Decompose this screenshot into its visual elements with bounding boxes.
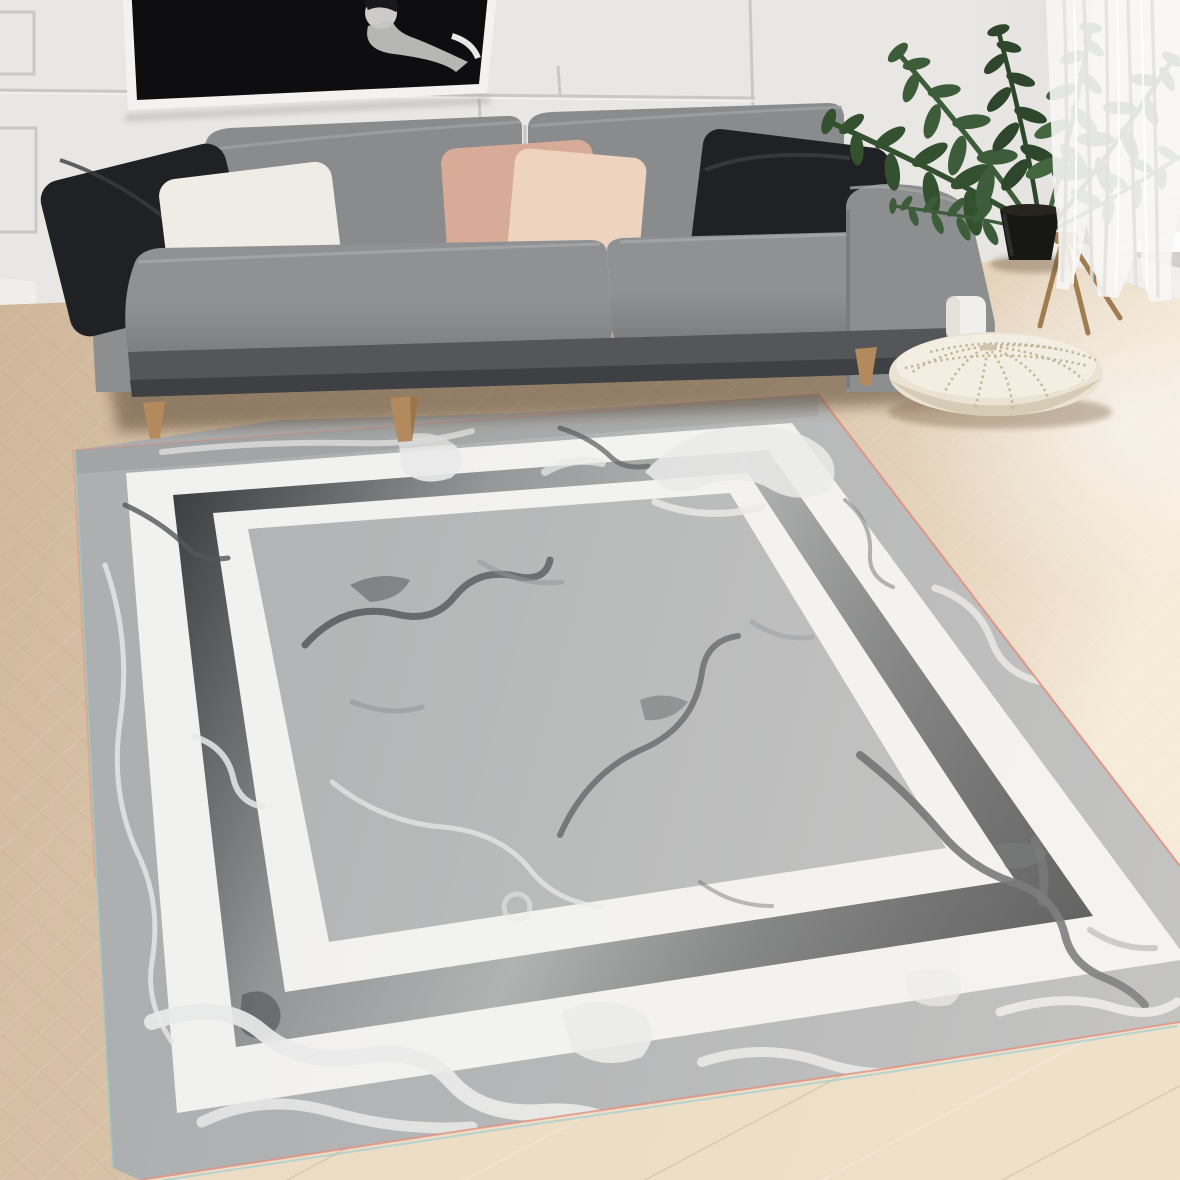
- living-room-scene: Living room product photo: gray marble-p…: [0, 0, 1180, 1180]
- baseboard-left: [0, 278, 36, 308]
- scene-art: [0, 0, 1180, 1180]
- window-curtain: [1046, 0, 1180, 302]
- pouf-dimple: [981, 344, 995, 351]
